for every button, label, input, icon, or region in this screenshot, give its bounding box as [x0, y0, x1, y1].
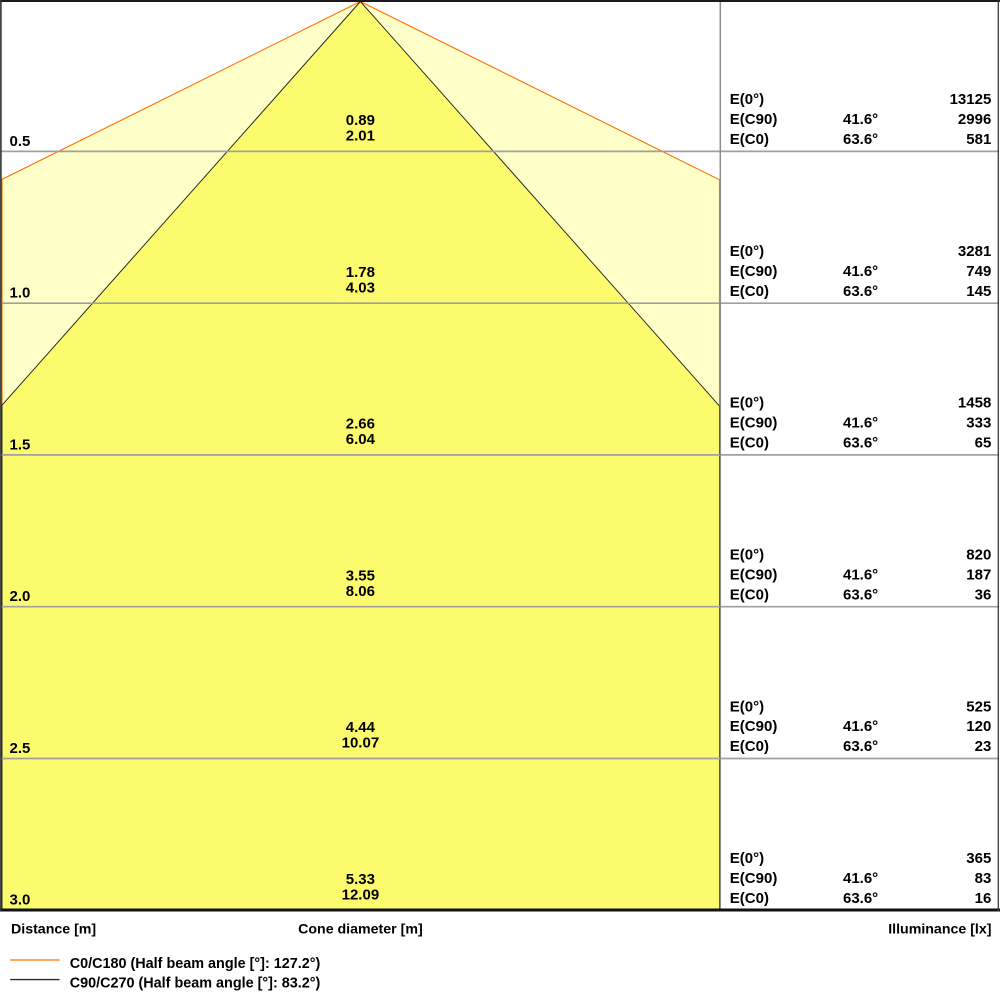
svg-text:2.0: 2.0	[10, 588, 31, 605]
svg-text:E(C0): E(C0)	[730, 435, 769, 452]
svg-text:333: 333	[966, 415, 991, 432]
svg-text:12.09: 12.09	[342, 886, 380, 903]
svg-text:Cone diameter [m]: Cone diameter [m]	[298, 922, 423, 938]
svg-text:820: 820	[966, 547, 991, 564]
svg-text:E(C90): E(C90)	[730, 566, 778, 583]
svg-text:3281: 3281	[958, 243, 991, 260]
svg-text:41.6°: 41.6°	[843, 870, 878, 887]
svg-text:0.89: 0.89	[346, 112, 375, 129]
svg-text:E(C0): E(C0)	[730, 131, 769, 148]
svg-text:120: 120	[966, 718, 991, 735]
svg-text:5.33: 5.33	[346, 871, 375, 888]
svg-text:E(0°): E(0°)	[730, 243, 764, 260]
svg-text:E(0°): E(0°)	[730, 547, 764, 564]
svg-text:63.6°: 63.6°	[843, 283, 878, 300]
svg-text:2.01: 2.01	[346, 128, 375, 145]
svg-text:187: 187	[966, 566, 991, 583]
svg-text:63.6°: 63.6°	[843, 586, 878, 603]
svg-text:E(C0): E(C0)	[730, 586, 769, 603]
svg-text:1458: 1458	[958, 395, 991, 412]
svg-text:1.78: 1.78	[346, 264, 375, 281]
svg-text:16: 16	[975, 890, 992, 907]
svg-text:2996: 2996	[958, 111, 991, 128]
svg-text:41.6°: 41.6°	[843, 415, 878, 432]
svg-text:4.03: 4.03	[346, 279, 375, 296]
svg-text:10.07: 10.07	[342, 735, 380, 752]
svg-text:E(0°): E(0°)	[730, 850, 764, 867]
svg-text:2.5: 2.5	[10, 740, 31, 757]
svg-text:63.6°: 63.6°	[843, 738, 878, 755]
svg-text:E(C90): E(C90)	[730, 718, 778, 735]
svg-text:3.0: 3.0	[10, 892, 31, 909]
svg-text:4.44: 4.44	[346, 719, 376, 736]
svg-text:8.06: 8.06	[346, 583, 375, 600]
svg-text:65: 65	[975, 435, 992, 452]
svg-text:63.6°: 63.6°	[843, 131, 878, 148]
svg-text:749: 749	[966, 263, 991, 280]
svg-text:E(C90): E(C90)	[730, 111, 778, 128]
svg-text:1.5: 1.5	[10, 436, 31, 453]
svg-text:145: 145	[966, 283, 991, 300]
svg-text:2.66: 2.66	[346, 416, 375, 433]
svg-text:23: 23	[975, 738, 992, 755]
svg-text:41.6°: 41.6°	[843, 718, 878, 735]
svg-text:6.04: 6.04	[346, 431, 376, 448]
svg-text:E(C0): E(C0)	[730, 890, 769, 907]
svg-text:41.6°: 41.6°	[843, 111, 878, 128]
svg-text:83: 83	[975, 870, 992, 887]
svg-text:E(C90): E(C90)	[730, 263, 778, 280]
svg-text:13125: 13125	[950, 91, 992, 108]
svg-text:63.6°: 63.6°	[843, 435, 878, 452]
svg-text:E(0°): E(0°)	[730, 91, 764, 108]
svg-text:525: 525	[966, 698, 991, 715]
svg-text:3.55: 3.55	[346, 567, 375, 584]
svg-text:581: 581	[966, 131, 991, 148]
svg-text:63.6°: 63.6°	[843, 890, 878, 907]
svg-text:Illuminance [lx]: Illuminance [lx]	[888, 922, 991, 938]
svg-text:41.6°: 41.6°	[843, 566, 878, 583]
svg-text:365: 365	[966, 850, 991, 867]
svg-text:E(C90): E(C90)	[730, 415, 778, 432]
svg-text:C90/C270 (Half beam angle [°]:: C90/C270 (Half beam angle [°]: 83.2°)	[70, 976, 321, 992]
svg-text:E(C0): E(C0)	[730, 283, 769, 300]
svg-text:41.6°: 41.6°	[843, 263, 878, 280]
svg-text:C0/C180 (Half beam angle [°]:: C0/C180 (Half beam angle [°]: 127.2°)	[70, 956, 321, 972]
svg-text:E(C90): E(C90)	[730, 870, 778, 887]
svg-text:0.5: 0.5	[10, 133, 31, 150]
svg-text:E(0°): E(0°)	[730, 395, 764, 412]
svg-text:E(0°): E(0°)	[730, 698, 764, 715]
svg-text:E(C0): E(C0)	[730, 738, 769, 755]
svg-text:1.0: 1.0	[10, 285, 31, 302]
svg-text:36: 36	[975, 586, 992, 603]
svg-text:Distance [m]: Distance [m]	[11, 922, 96, 938]
